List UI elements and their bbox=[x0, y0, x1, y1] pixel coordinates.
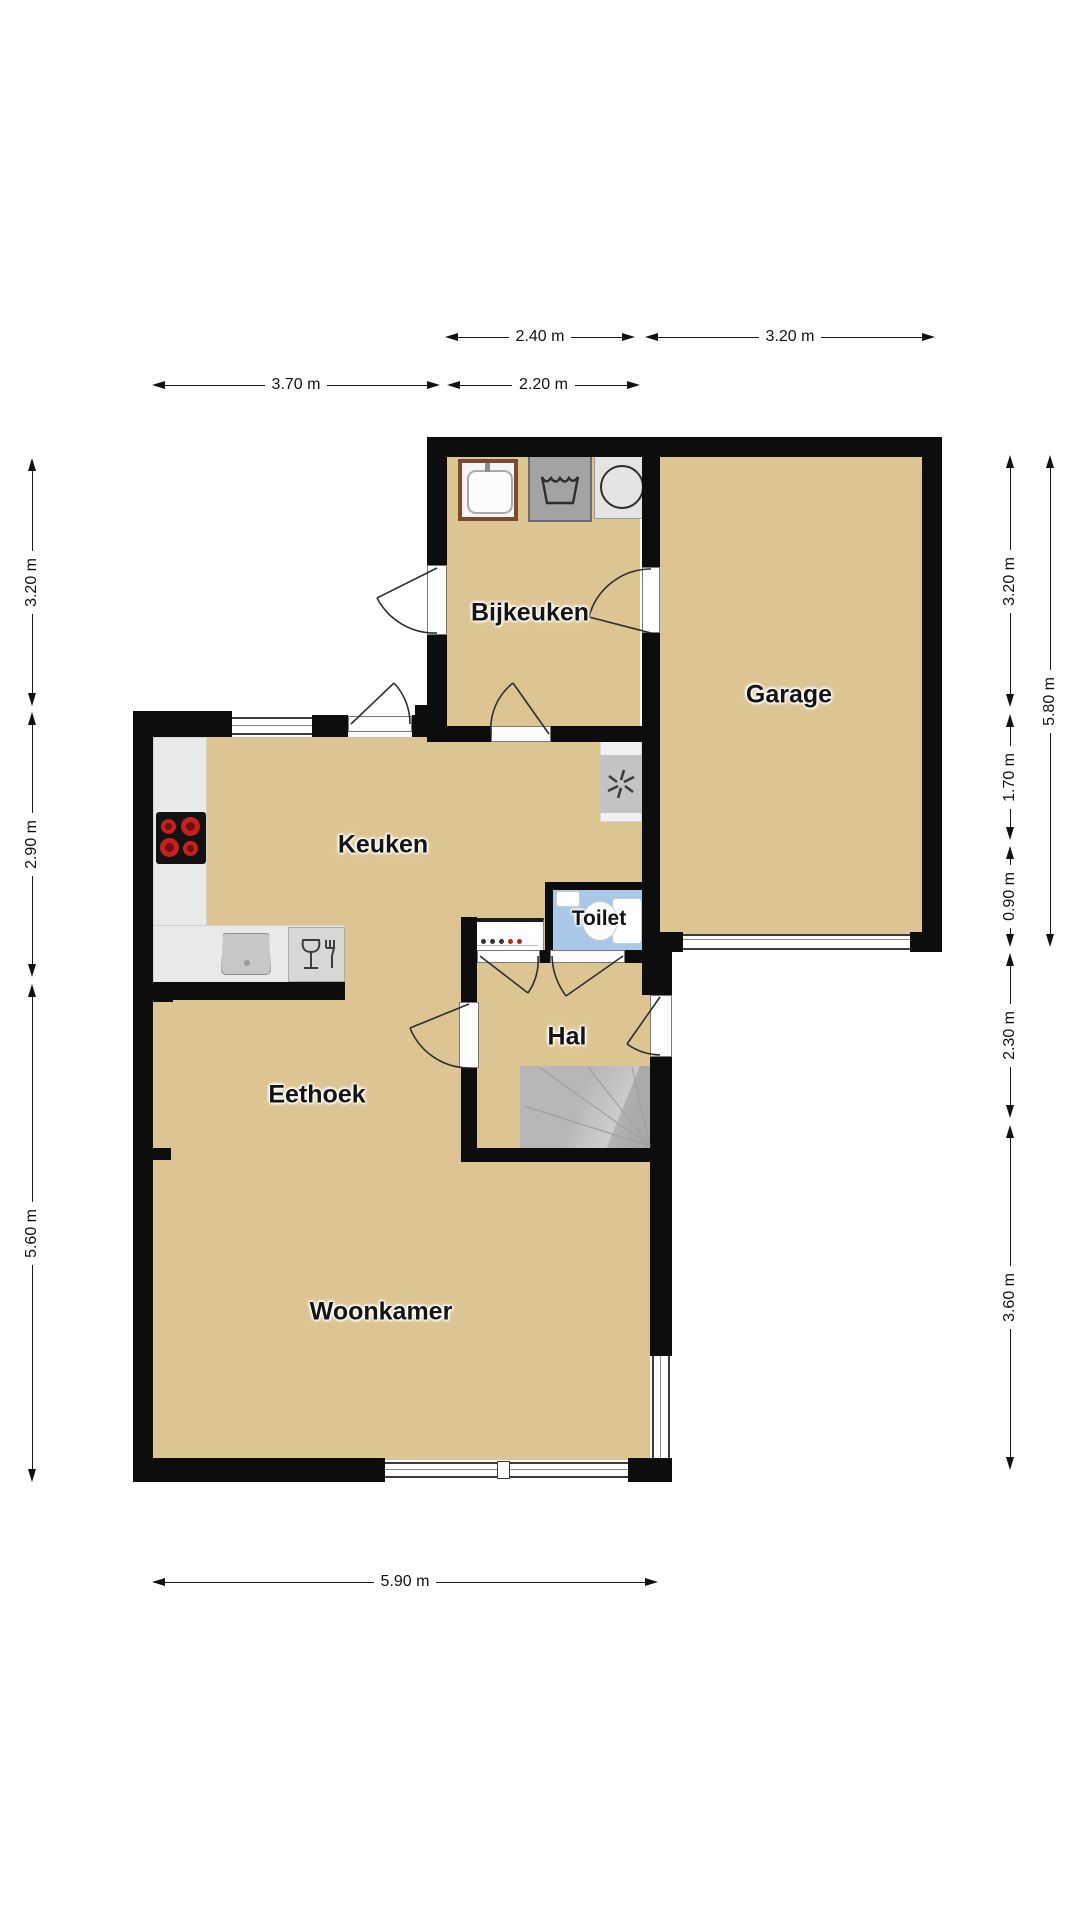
counter-appliance bbox=[470, 918, 544, 952]
arrowhead-icon bbox=[1006, 846, 1014, 859]
dryer-drum bbox=[600, 465, 644, 509]
wall-segment bbox=[461, 917, 477, 1002]
extractor-fan-unit bbox=[600, 755, 642, 813]
arrowhead-icon bbox=[645, 333, 658, 341]
wall-segment bbox=[133, 713, 153, 1482]
kitchen-sink-icon bbox=[221, 933, 271, 975]
dimension-right-090: 0.90 m bbox=[1001, 846, 1019, 947]
wall-segment bbox=[642, 633, 660, 952]
arrowhead-icon bbox=[445, 333, 458, 341]
wall-segment bbox=[922, 437, 942, 952]
wall-segment bbox=[642, 952, 672, 995]
arrowhead-icon bbox=[447, 381, 460, 389]
arrowhead-icon bbox=[1046, 455, 1054, 468]
wall-segment bbox=[628, 1458, 672, 1482]
wash-tub-icon bbox=[537, 467, 583, 511]
dimension-right-garage: 3.20 m bbox=[1001, 455, 1019, 707]
dimension-top-garage: 3.20 m bbox=[645, 328, 935, 346]
wall-segment bbox=[540, 950, 550, 963]
extractor-fan-icon bbox=[604, 767, 638, 801]
dimension-left-lower: 5.60 m bbox=[23, 984, 41, 1482]
dimension-left-upper: 3.20 m bbox=[23, 458, 41, 706]
button-dot bbox=[508, 939, 513, 944]
garage-door bbox=[683, 934, 910, 950]
burner bbox=[161, 819, 176, 834]
door-bijkeuken-garage bbox=[642, 567, 660, 633]
dimension-label: 0.90 m bbox=[1001, 865, 1019, 928]
wall-segment bbox=[153, 1148, 171, 1160]
arrowhead-icon bbox=[1006, 455, 1014, 468]
washing-machine-icon bbox=[528, 455, 592, 522]
stove-burners-icon bbox=[156, 812, 206, 864]
wall-segment bbox=[910, 932, 942, 952]
window-mullion bbox=[497, 1461, 510, 1479]
wall-segment bbox=[642, 932, 683, 952]
arrowhead-icon bbox=[1006, 953, 1014, 966]
room-label-garage: Garage bbox=[746, 681, 832, 710]
dimension-label: 3.20 m bbox=[23, 551, 41, 614]
appliance-buttons bbox=[481, 931, 526, 949]
utility-sink-icon bbox=[458, 459, 518, 521]
room-label-toilet: Toilet bbox=[572, 907, 626, 931]
room-label-hal: Hal bbox=[548, 1023, 587, 1052]
dimension-label: 2.20 m bbox=[512, 376, 575, 394]
arrowhead-icon bbox=[28, 458, 36, 471]
sink-drain bbox=[244, 960, 250, 966]
wall-segment bbox=[312, 715, 348, 737]
wall-segment bbox=[650, 1162, 672, 1356]
wall-segment bbox=[545, 882, 642, 890]
dimension-top-bijkeuken: 2.40 m bbox=[445, 328, 635, 346]
button-dot bbox=[517, 939, 522, 944]
wall-segment bbox=[427, 726, 491, 742]
faucet bbox=[485, 463, 490, 472]
arrowhead-icon bbox=[28, 712, 36, 725]
wall-segment bbox=[133, 982, 345, 1000]
dimension-right-woonkamer: 3.60 m bbox=[1001, 1125, 1019, 1470]
glass-fork-icon bbox=[295, 934, 339, 976]
burner bbox=[160, 838, 179, 857]
dimension-label: 5.80 m bbox=[1041, 670, 1059, 733]
wall-segment bbox=[461, 1068, 477, 1152]
dimension-label: 1.70 m bbox=[1001, 746, 1019, 809]
arrowhead-icon bbox=[1006, 714, 1014, 727]
door-bijkeuken-keuken bbox=[491, 726, 551, 742]
room-label-bijkeuken: Bijkeuken bbox=[471, 599, 589, 628]
arrowhead-icon bbox=[645, 1578, 658, 1586]
arrowhead-icon bbox=[1006, 1105, 1014, 1118]
arrowhead-icon bbox=[1006, 827, 1014, 840]
dimension-right-170: 1.70 m bbox=[1001, 714, 1019, 840]
wall-segment bbox=[650, 1057, 672, 1162]
wall-segment bbox=[133, 1458, 385, 1482]
arrowhead-icon bbox=[1006, 694, 1014, 707]
arrowhead-icon bbox=[1046, 934, 1054, 947]
burner bbox=[183, 841, 198, 856]
arrowhead-icon bbox=[1006, 934, 1014, 947]
dimension-right-hal: 2.30 m bbox=[1001, 953, 1019, 1118]
window-keuken bbox=[232, 717, 312, 735]
dimension-label: 2.40 m bbox=[509, 328, 572, 346]
utility-sink-basin bbox=[467, 470, 513, 514]
dimension-left-middle: 2.90 m bbox=[23, 712, 41, 977]
arrowhead-icon bbox=[28, 984, 36, 997]
wall-segment bbox=[461, 1148, 672, 1162]
arrowhead-icon bbox=[622, 333, 635, 341]
dimension-right-outer: 5.80 m bbox=[1041, 455, 1059, 947]
arrowhead-icon bbox=[1006, 1457, 1014, 1470]
dimension-label: 3.70 m bbox=[265, 376, 328, 394]
door-keuken-exterior bbox=[348, 716, 412, 732]
arrowhead-icon bbox=[627, 381, 640, 389]
door-hal-eethoek bbox=[459, 1002, 479, 1068]
room-label-keuken: Keuken bbox=[338, 831, 428, 860]
button-dot bbox=[499, 939, 504, 944]
dimension-label: 3.60 m bbox=[1001, 1266, 1019, 1329]
wall-segment bbox=[427, 437, 942, 457]
arrowhead-icon bbox=[427, 381, 440, 389]
wall-segment bbox=[551, 726, 660, 742]
dimension-top-bijkeuken-inner: 2.20 m bbox=[447, 376, 640, 394]
dimension-label: 5.60 m bbox=[23, 1202, 41, 1265]
arrowhead-icon bbox=[28, 964, 36, 977]
wall-segment bbox=[642, 457, 660, 567]
room-label-eethoek: Eethoek bbox=[268, 1081, 365, 1110]
arrowhead-icon bbox=[922, 333, 935, 341]
arrowhead-icon bbox=[152, 381, 165, 389]
arrowhead-icon bbox=[28, 1469, 36, 1482]
floor-plan: Bijkeuken Garage Keuken Toilet Hal Eetho… bbox=[0, 0, 1080, 1920]
toilet-hand-basin bbox=[556, 891, 580, 907]
dimension-label: 5.90 m bbox=[374, 1573, 437, 1591]
dimension-label: 3.20 m bbox=[759, 328, 822, 346]
arrowhead-icon bbox=[152, 1578, 165, 1586]
dimension-bottom: 5.90 m bbox=[152, 1573, 658, 1591]
burner bbox=[181, 817, 200, 836]
door-hal-keuken bbox=[477, 950, 540, 963]
button-dot bbox=[481, 939, 486, 944]
door-hal-toilet bbox=[550, 950, 625, 963]
arrowhead-icon bbox=[1006, 1125, 1014, 1138]
appliance-line bbox=[476, 945, 538, 946]
dishwasher-icon bbox=[288, 927, 345, 982]
button-dot bbox=[490, 939, 495, 944]
dimension-top-keuken: 3.70 m bbox=[152, 376, 440, 394]
wall-segment bbox=[545, 882, 553, 950]
dimension-label: 2.30 m bbox=[1001, 1004, 1019, 1067]
window-woonkamer-side bbox=[652, 1356, 670, 1458]
room-label-woonkamer: Woonkamer bbox=[310, 1298, 453, 1327]
dimension-label: 2.90 m bbox=[23, 813, 41, 876]
staircase bbox=[520, 1066, 652, 1148]
dimension-label: 3.20 m bbox=[1001, 550, 1019, 613]
arrowhead-icon bbox=[28, 693, 36, 706]
front-door bbox=[650, 995, 672, 1057]
door-bijkeuken-exterior bbox=[427, 565, 447, 635]
